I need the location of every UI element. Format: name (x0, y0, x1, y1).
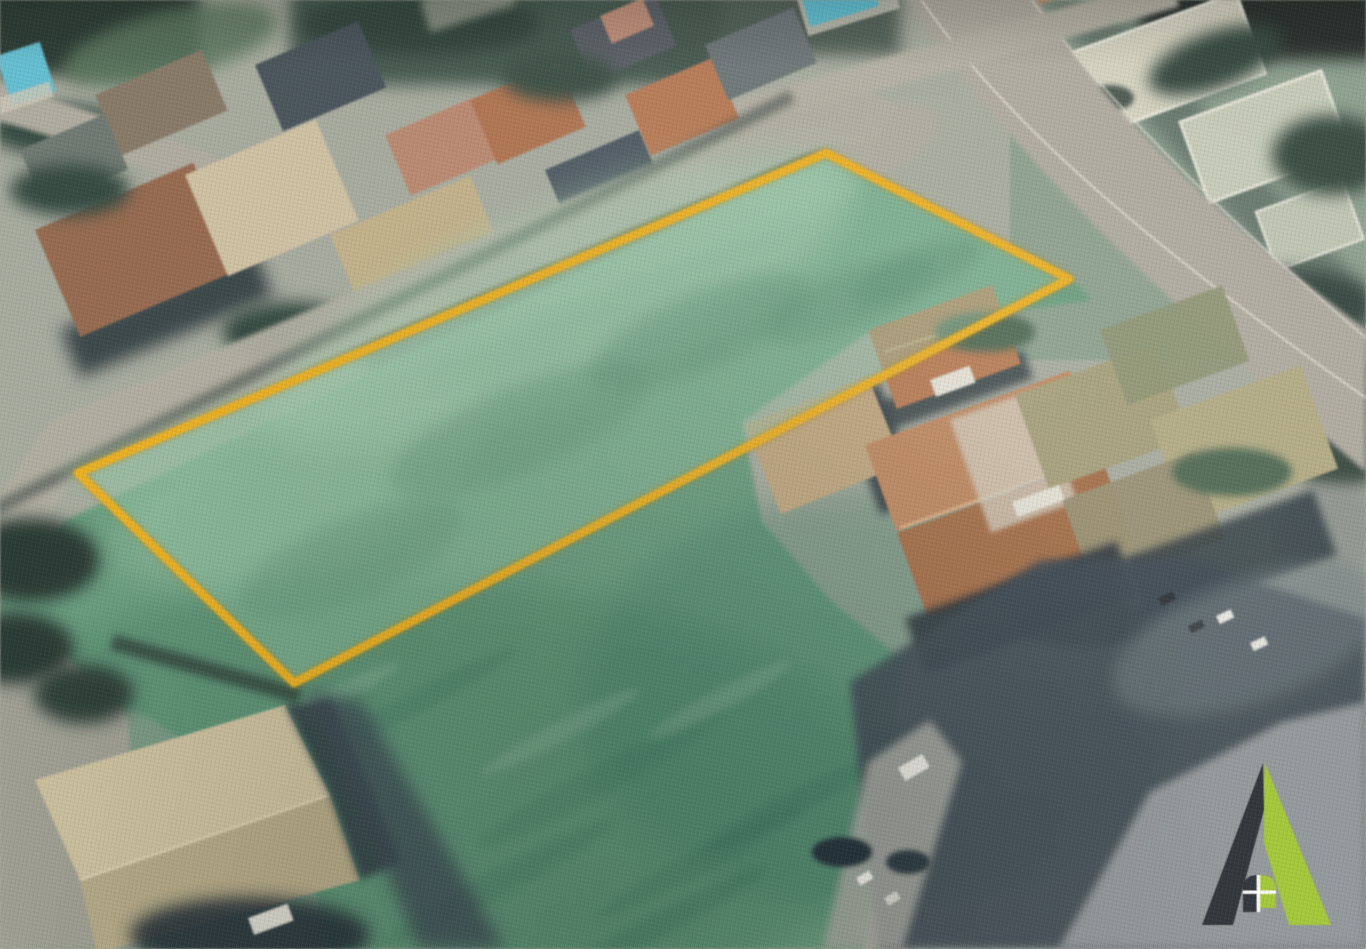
agency-logo (1185, 748, 1347, 948)
logo-house-window-icon (1243, 875, 1276, 912)
aerial-photo (0, 0, 1366, 949)
tree (10, 164, 130, 216)
aerial-scene (0, 0, 1366, 949)
